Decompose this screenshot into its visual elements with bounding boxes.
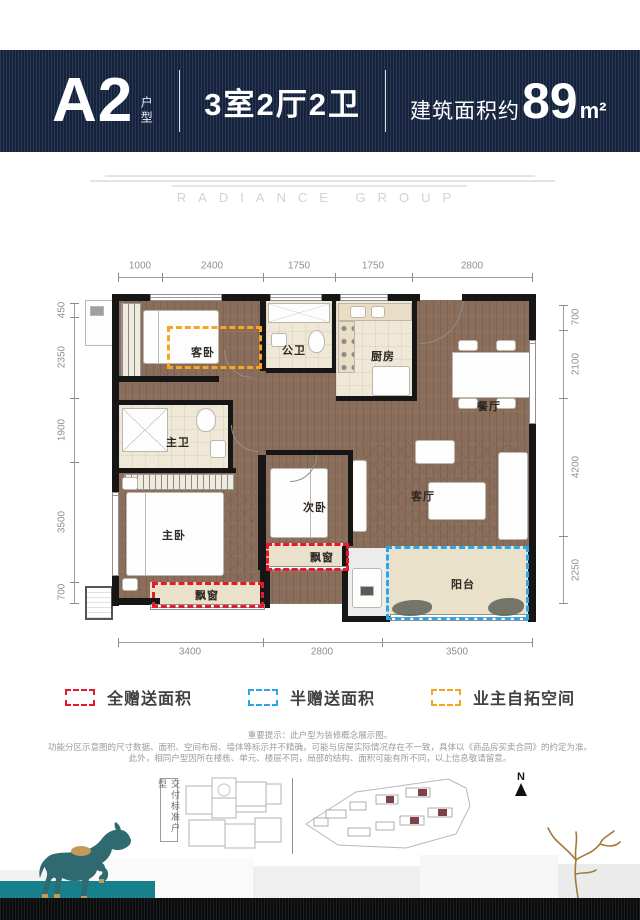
wall-segment [119, 376, 219, 382]
dim-tick [263, 273, 264, 282]
room-label-guest-bedroom: 客卧 [191, 344, 215, 360]
full-gift-zone-second-bay [266, 543, 349, 571]
kitchen-sink [371, 306, 385, 318]
room-label-public-bath: 公卫 [282, 342, 306, 358]
wall-segment [412, 301, 417, 401]
dim-label: 1000 [129, 261, 151, 272]
legend-label: 业主自拓空间 [473, 685, 575, 709]
fine-print-line [105, 175, 535, 177]
dim-tick [70, 582, 79, 583]
wall-segment [528, 546, 536, 622]
master-shower [122, 408, 168, 452]
room-label-bay-window-second: 飘窗 [310, 549, 334, 565]
master-wardrobe [124, 474, 234, 490]
window [150, 294, 222, 301]
branch-decoration [540, 826, 625, 898]
window [270, 294, 322, 301]
bottom-black-band [0, 898, 640, 920]
window [112, 492, 119, 576]
dim-tick [559, 330, 568, 331]
dim-tick [559, 305, 568, 306]
room-label-bay-window-master: 飘窗 [195, 587, 219, 603]
window [529, 340, 536, 424]
dim-tick [335, 273, 336, 282]
coffee-table [428, 482, 486, 520]
dining-chair [458, 340, 478, 351]
dim-line-bottom [118, 642, 532, 643]
area-unit: m² [580, 98, 607, 124]
window [340, 294, 388, 301]
dim-label: 700 [571, 309, 582, 326]
dim-tick [559, 603, 568, 604]
footer-divider [292, 778, 293, 854]
sofa [498, 452, 528, 540]
legend-label: 半赠送面积 [290, 685, 375, 709]
room-label-balcony: 阳台 [451, 576, 475, 592]
nightstand [122, 477, 138, 490]
equipment-box [90, 306, 104, 316]
master-toilet [196, 408, 216, 432]
fridge [372, 366, 410, 396]
fine-print-line [172, 185, 467, 187]
unit-suffix: 户型 [138, 96, 155, 126]
rooms-summary: 3室2厅2卫 [204, 79, 361, 124]
legend-item-owner-expand: 业主自拓空间 [431, 685, 575, 709]
guest-closet [121, 303, 141, 377]
brand-watermark: RADIANCE GROUP [0, 190, 640, 205]
dim-label: 700 [57, 584, 68, 601]
dim-tick [70, 398, 79, 399]
dim-tick [70, 603, 79, 604]
toilet [308, 330, 325, 353]
shower [268, 303, 330, 323]
dim-tick [532, 638, 533, 647]
header-banner: A2 户型 3室2厅2卫 建筑面积约 89 m² [0, 50, 640, 152]
area-info: 建筑面积约 89 m² [410, 76, 607, 126]
dim-tick [263, 638, 264, 647]
unit-code: A2 [52, 70, 133, 132]
wall-segment [332, 301, 336, 371]
dim-label: 2350 [57, 346, 68, 368]
skyline-block [420, 855, 558, 898]
dim-line-left [74, 303, 75, 603]
ac-platform [85, 586, 113, 620]
dim-tick [532, 273, 533, 282]
disclaimer-line-1: 重要提示：此户型为装修概念展示图。 [0, 729, 640, 741]
delivery-standard-box: 交付标准户型 [160, 778, 178, 842]
armchair [415, 440, 455, 464]
stove [338, 321, 355, 373]
dim-label: 2250 [571, 559, 582, 581]
header-divider [179, 70, 180, 132]
wall-segment [119, 400, 231, 405]
delivery-standard-label: 交付标准户型 [156, 779, 182, 841]
dim-tick [382, 638, 383, 647]
dim-line-right [563, 305, 564, 603]
dim-label: 3500 [446, 647, 468, 658]
wall-segment [336, 396, 417, 401]
dim-label: 3500 [57, 511, 68, 533]
wall-segment [344, 616, 390, 622]
wall-segment [258, 455, 266, 570]
master-sink [210, 440, 226, 458]
dining-chair [458, 398, 478, 409]
washing-machine-door [360, 586, 374, 596]
legend-item-full-gift: 全赠送面积 [65, 685, 192, 709]
floorplan-poster: A2 户型 3室2厅2卫 建筑面积约 89 m² RADIANCE GROUP [0, 0, 640, 920]
skyline-block [253, 866, 420, 898]
legend-item-half-gift: 半赠送面积 [248, 685, 375, 709]
compass: N [512, 772, 530, 796]
room-label-master-bath: 主卫 [166, 434, 190, 450]
dim-tick [118, 273, 119, 282]
room-label-kitchen: 厨房 [371, 348, 395, 364]
orange-dashed-box-icon [431, 689, 461, 706]
kitchen-sink [350, 306, 366, 318]
dining-table [452, 352, 532, 398]
room-label-master-bedroom: 主卧 [162, 527, 186, 543]
guest-bed-pillows [143, 310, 159, 364]
dim-label: 3400 [179, 647, 201, 658]
wall-segment [529, 294, 536, 556]
area-value: 89 [522, 76, 578, 126]
room-label-dining: 餐厅 [477, 398, 501, 414]
area-prefix: 建筑面积约 [410, 95, 520, 125]
wall-segment [119, 468, 236, 473]
dim-tick [70, 317, 79, 318]
dining-chair [496, 340, 516, 351]
nightstand [122, 578, 138, 591]
header-divider [385, 70, 386, 132]
dim-label: 1750 [362, 261, 384, 272]
compass-arrow-icon [515, 783, 527, 796]
wall-segment [266, 368, 336, 373]
disclaimer-line-3: 此外，相同户型因所在楼栋、单元、楼层不同，局部的结构、面积可能有所不同，以上信息… [0, 752, 640, 764]
blue-dashed-box-icon [248, 689, 278, 706]
site-plan [298, 772, 483, 864]
master-bed-pillows [126, 492, 146, 576]
dim-label: 1750 [288, 261, 310, 272]
dim-line-top [118, 277, 532, 278]
dim-label: 1900 [57, 419, 68, 441]
dim-tick [412, 273, 413, 282]
dim-tick [559, 536, 568, 537]
red-dashed-box-icon [65, 689, 95, 706]
fine-print-line [90, 180, 555, 182]
wall-segment [348, 450, 353, 546]
dim-tick [70, 303, 79, 304]
dim-tick [118, 638, 119, 647]
dim-tick [559, 398, 568, 399]
wall-segment [228, 400, 233, 472]
dim-label: 450 [57, 302, 68, 319]
dim-label: 2400 [201, 261, 223, 272]
dim-tick [162, 273, 163, 282]
tv-console [352, 460, 367, 532]
wall-segment [462, 294, 536, 301]
dim-label: 2100 [571, 353, 582, 375]
legend: 全赠送面积 半赠送面积 业主自拓空间 [0, 685, 640, 709]
dim-label: 2800 [461, 261, 483, 272]
room-label-second-bedroom: 次卧 [303, 499, 327, 515]
mini-floorplan-drawing [183, 776, 285, 854]
room-label-living: 客厅 [411, 488, 435, 504]
dim-label: 4200 [571, 456, 582, 478]
compass-north-label: N [512, 772, 530, 782]
dim-tick [70, 462, 79, 463]
horse-sculpture [35, 820, 145, 904]
legend-label: 全赠送面积 [107, 685, 192, 709]
dim-label: 2800 [311, 647, 333, 658]
